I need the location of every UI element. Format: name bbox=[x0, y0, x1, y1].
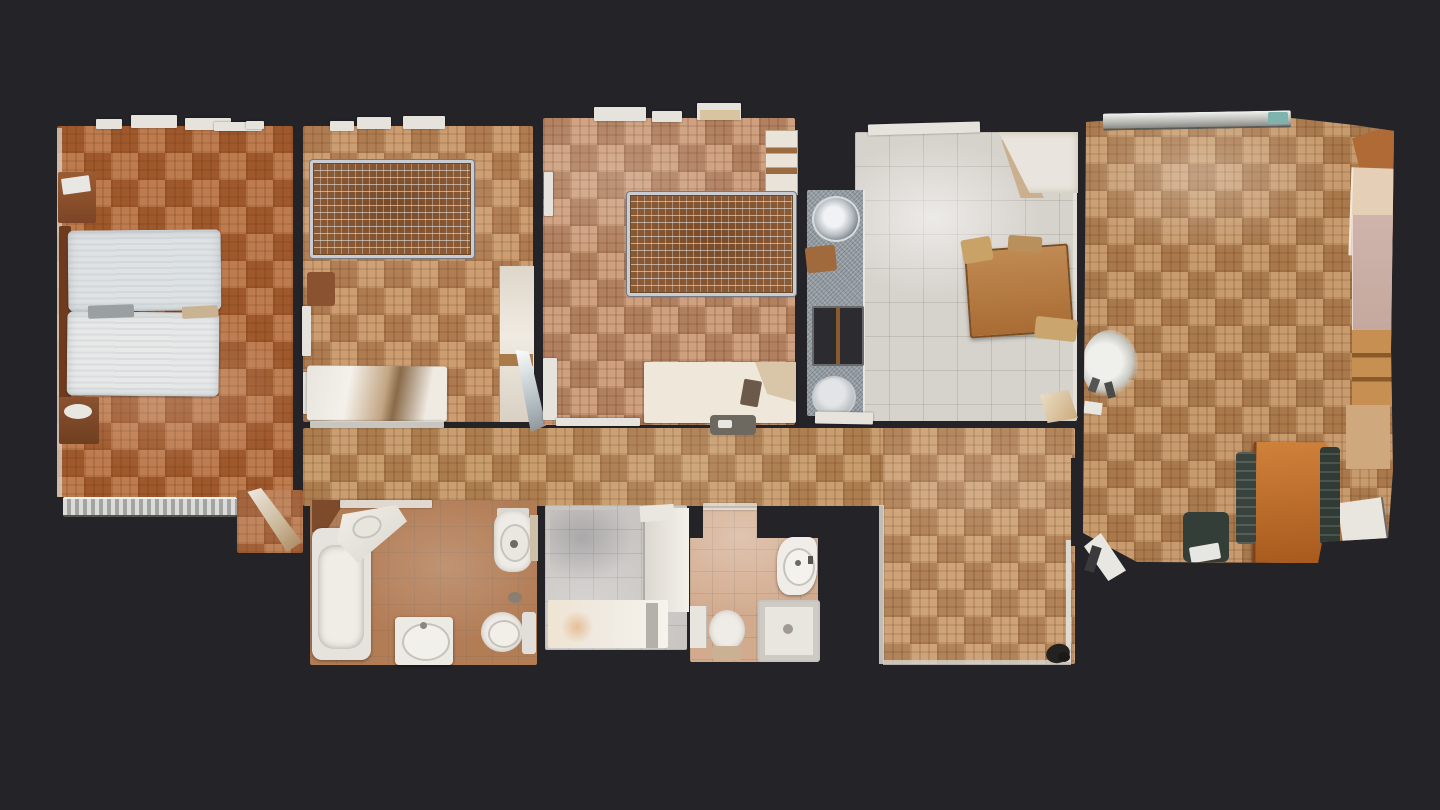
bedroom2-door-sill bbox=[310, 421, 444, 428]
kitchen-cooktop bbox=[812, 306, 864, 366]
kitchen-round-sink bbox=[812, 196, 860, 242]
master-radiator bbox=[63, 497, 237, 517]
bathroom2-door-sill bbox=[703, 503, 757, 510]
bedroom3-window-sill bbox=[594, 107, 646, 121]
dining-chair-left bbox=[1236, 452, 1256, 544]
bathroom2-faucet bbox=[808, 556, 813, 564]
laundry-gray-piece bbox=[646, 603, 658, 648]
bidet-drain bbox=[510, 540, 518, 548]
dark-object-small bbox=[1058, 652, 1070, 662]
bathroom2-toilet-seat bbox=[709, 610, 745, 650]
sink-faucet bbox=[420, 622, 427, 629]
dining-chair-right bbox=[1320, 447, 1340, 545]
toilet-bowl-ring bbox=[488, 620, 520, 648]
bathroom2-cabinet bbox=[690, 606, 707, 648]
bathroom2-toilet-base bbox=[712, 646, 742, 660]
bedroom3-left-sill-low bbox=[543, 358, 557, 420]
bedroom3-door-sill bbox=[556, 418, 640, 426]
bed-gray-wedge bbox=[88, 304, 134, 319]
bedroom3-window-board bbox=[700, 110, 740, 120]
bathroom2-sink-drain bbox=[795, 560, 801, 566]
bedroom2-mesh-bed-frame bbox=[310, 160, 474, 258]
bedroom2-stool bbox=[307, 272, 335, 306]
living-sideboard bbox=[1346, 405, 1390, 469]
kitchen-chair bbox=[1007, 235, 1042, 253]
floorplan-canvas[interactable] bbox=[0, 0, 1440, 810]
bedroom3-left-sill bbox=[544, 172, 553, 216]
master-window-sill bbox=[246, 121, 264, 129]
kitchen-cutting-board bbox=[805, 245, 838, 274]
floor-drain bbox=[508, 592, 522, 603]
laundry-counter-right bbox=[643, 508, 689, 612]
foyer-bottom-baseboard bbox=[883, 660, 1071, 665]
living-wardrobe bbox=[1352, 215, 1395, 337]
double-bed-mattress-top bbox=[68, 229, 222, 311]
bed-tan-wedge bbox=[182, 305, 219, 319]
room-foyer[interactable] bbox=[883, 428, 1075, 664]
master-window-sill bbox=[131, 115, 177, 128]
bathroom1-door-sill bbox=[340, 500, 432, 508]
living-radiator-glint bbox=[1268, 112, 1288, 124]
foyer-right-baseboard bbox=[1066, 540, 1071, 662]
bedroom2-window-sill bbox=[330, 121, 354, 131]
kitchen-chair bbox=[960, 236, 994, 265]
laundry-dark-patch bbox=[550, 510, 630, 580]
living-shelving bbox=[1352, 330, 1394, 406]
living-white-unit bbox=[1337, 497, 1388, 545]
dining-table bbox=[1252, 442, 1326, 564]
living-corner-wood bbox=[1352, 124, 1394, 172]
double-bed-mattress-bottom bbox=[67, 311, 220, 396]
bedroom2-window-sill bbox=[357, 117, 391, 129]
laundry-white-blob bbox=[639, 504, 674, 522]
bedroom2-dresser bbox=[307, 366, 447, 422]
nightstand-tray bbox=[64, 404, 92, 419]
pedestal-sink-basin bbox=[402, 623, 450, 661]
foyer-left-baseboard bbox=[879, 505, 884, 664]
bedroom2-window-sill bbox=[403, 116, 445, 129]
bedroom3-chair bbox=[710, 415, 756, 435]
shower-drain bbox=[783, 624, 793, 634]
room-living[interactable] bbox=[1080, 110, 1396, 568]
kitchen-door-sill bbox=[815, 411, 873, 424]
bedroom3-tall-shelf bbox=[765, 130, 798, 195]
living-radiator bbox=[1103, 110, 1291, 130]
bathroom2-sink-basin bbox=[783, 548, 815, 586]
kitchen-chair bbox=[1034, 316, 1078, 342]
toilet-tank bbox=[522, 612, 536, 654]
bedroom2-left-sill bbox=[302, 306, 311, 356]
bedroom3-window-sill bbox=[652, 111, 682, 122]
bathroom1-shelf bbox=[530, 515, 538, 561]
bedroom3-mesh-bed-frame bbox=[627, 192, 796, 296]
living-white-bit bbox=[1083, 401, 1102, 415]
master-window-sill bbox=[96, 119, 122, 129]
bedroom3-chair-cushion bbox=[718, 420, 732, 428]
laundry-warm-patch bbox=[560, 612, 594, 642]
